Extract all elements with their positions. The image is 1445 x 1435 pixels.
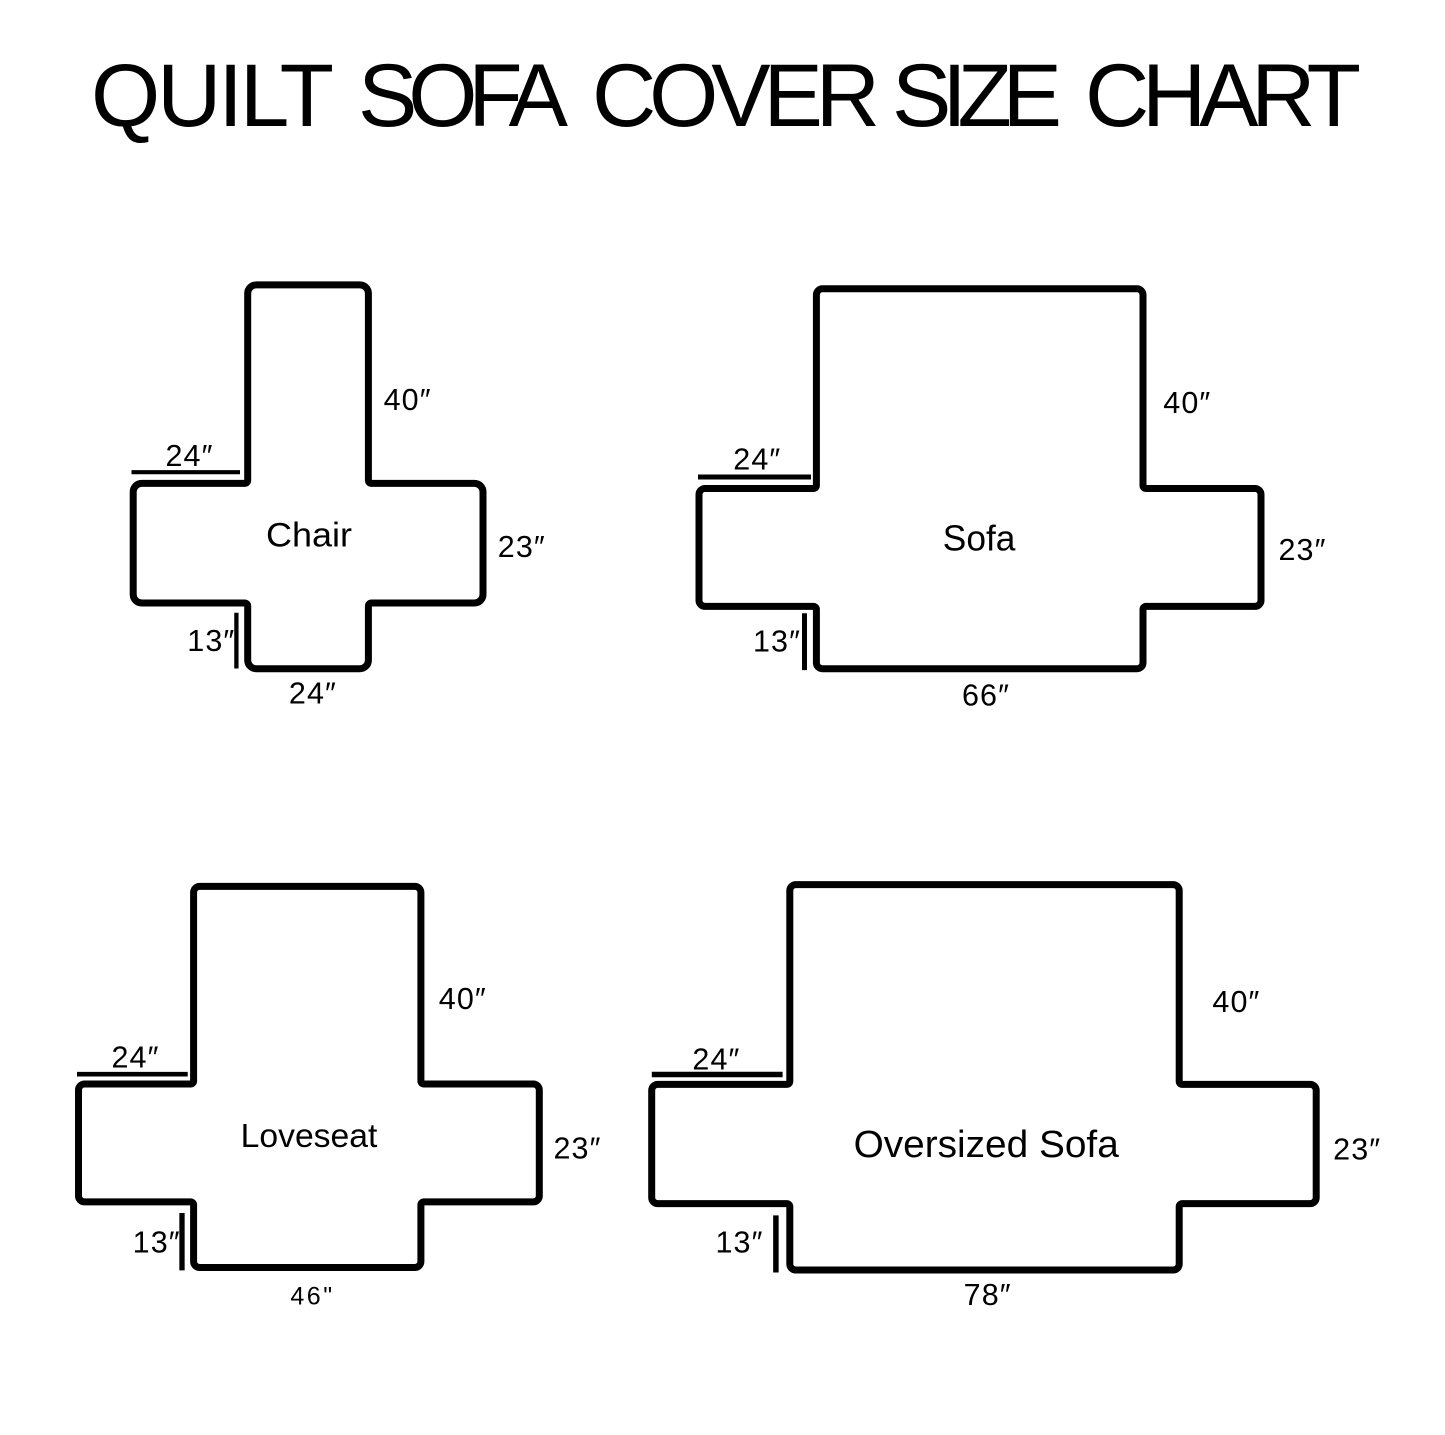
svg-text:Oversized Sofa: Oversized Sofa (854, 1123, 1120, 1166)
svg-text:Chair: Chair (266, 517, 352, 555)
svg-text:13″: 13″ (753, 625, 801, 659)
svg-text:24″: 24″ (165, 439, 213, 473)
svg-text:40″: 40″ (1212, 985, 1260, 1019)
svg-text:40″: 40″ (1163, 386, 1211, 420)
svg-text:Loveseat: Loveseat (241, 1118, 378, 1155)
svg-text:24″: 24″ (289, 676, 337, 710)
svg-text:24″: 24″ (111, 1041, 159, 1075)
svg-text:66″: 66″ (962, 678, 1010, 712)
svg-text:23″: 23″ (1278, 533, 1326, 567)
svg-text:23″: 23″ (553, 1132, 601, 1166)
svg-text:23″: 23″ (498, 530, 546, 564)
svg-text:24″: 24″ (733, 442, 781, 476)
svg-text:QUILTSOFACOVERSIZECHART: QUILTSOFACOVERSIZECHART (91, 45, 1361, 145)
svg-text:23″: 23″ (1333, 1133, 1381, 1167)
svg-text:40″: 40″ (439, 982, 487, 1016)
svg-text:78″: 78″ (964, 1278, 1012, 1312)
svg-text:13″: 13″ (133, 1225, 181, 1259)
svg-text:13″: 13″ (187, 624, 235, 658)
svg-text:40″: 40″ (384, 383, 432, 417)
svg-text:Sofa: Sofa (943, 518, 1016, 558)
svg-text:13″: 13″ (715, 1226, 763, 1260)
svg-text:24″: 24″ (692, 1042, 740, 1076)
svg-text:46": 46" (290, 1282, 334, 1310)
